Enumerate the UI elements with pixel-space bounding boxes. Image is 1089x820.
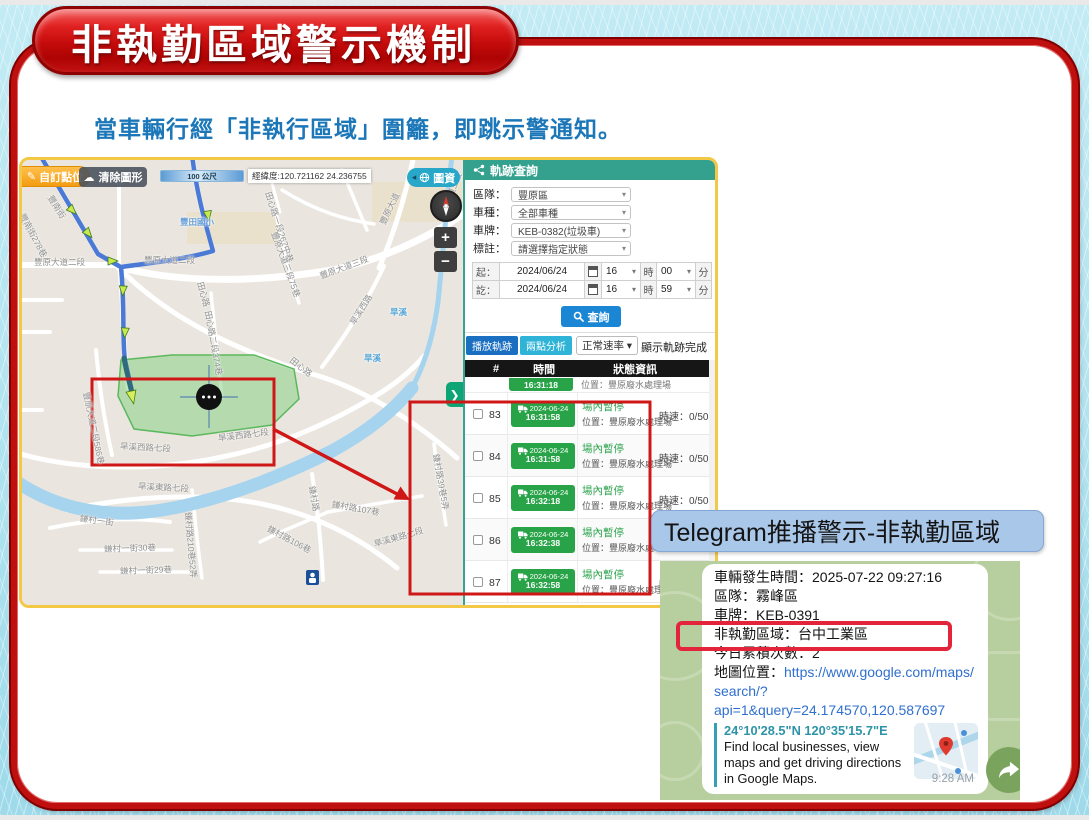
row-status: 場內暫停 xyxy=(582,567,624,582)
row-time-badge: 2024-06-2416:32:38 xyxy=(511,527,575,553)
zoom-in-button[interactable]: + xyxy=(434,227,457,248)
search-icon xyxy=(573,311,585,323)
slide: { "slide": { "title": "非執勤區域警示機制", "subt… xyxy=(0,0,1089,820)
row-number: 87 xyxy=(489,577,501,589)
cloud-icon: ☁ xyxy=(84,171,95,184)
row-speed: 時速：0/50 xyxy=(659,450,708,465)
speed-mode-select[interactable]: 正常速率 ▾ xyxy=(576,336,638,355)
panel-toggle-button[interactable]: ❯ xyxy=(446,382,463,407)
play-track-button[interactable]: 播放軌跡 xyxy=(466,336,518,355)
message-timestamp: 9:28 AM xyxy=(932,770,974,789)
row-number: 83 xyxy=(489,409,501,421)
row-status: 場內暫停 xyxy=(582,483,624,498)
street-label: 旱溪 xyxy=(390,306,407,318)
end-minute-select[interactable]: 59▾ xyxy=(656,280,696,299)
share-nodes-icon xyxy=(473,164,485,176)
track-table-row: 832024-06-2416:31:58場內暫停位置：豐原廢水處理場時速：0/5… xyxy=(465,393,711,435)
row-time-badge: 2024-06-2416:31:58 xyxy=(511,443,575,469)
row-number: 85 xyxy=(489,493,501,505)
msg-line-district: 區隊：霧峰區 xyxy=(714,587,978,606)
map-layers-button[interactable]: ◂ 圖資 xyxy=(407,168,460,187)
track-query-header: 軌跡查詢 xyxy=(465,160,715,180)
map-coordinates-readout: 經緯度:120.721162 24.236755 xyxy=(248,169,371,183)
row-status: 場內暫停 xyxy=(582,399,624,414)
forward-button[interactable] xyxy=(986,747,1020,793)
row-status: 場內暫停 xyxy=(582,441,624,456)
vehicle-type-select[interactable]: 全部車種 ▾ xyxy=(511,205,631,220)
pencil-icon: ✎ xyxy=(27,170,36,183)
row-checkbox[interactable] xyxy=(473,451,483,461)
poi-temple-icon xyxy=(306,570,319,585)
panel-title: 軌跡查詢 xyxy=(490,162,538,179)
row-checkbox[interactable] xyxy=(473,493,483,503)
slide-subtitle: 當車輛行經「非執行區域」圍籬，即跳示警通知。 xyxy=(94,110,622,144)
row-number: 86 xyxy=(489,535,501,547)
row-time-badge: 2024-06-2416:32:18 xyxy=(511,485,575,511)
street-label: 豐田國小 xyxy=(180,216,214,228)
forward-arrow-icon xyxy=(998,760,1020,780)
compass-control[interactable] xyxy=(430,190,462,222)
track-table-header: # 時間 狀態資訊 xyxy=(465,360,717,377)
alert-highlight-box xyxy=(676,621,952,651)
row-time-badge: 2024-06-2416:32:58 xyxy=(511,569,575,595)
chevron-down-icon: ▾ xyxy=(627,340,632,352)
plate-select[interactable]: KEB-0382(垃圾車) ▾ xyxy=(511,223,631,238)
start-date-input[interactable]: 2024/06/24 xyxy=(499,262,585,281)
row-number: 84 xyxy=(489,451,501,463)
start-time-row: 起： 2024/06/24 16▾ 時 00▾ 分 xyxy=(473,262,712,281)
track-table-row: 842024-06-2416:31:58場內暫停位置：豐原廢水處理場時速：0/5… xyxy=(465,435,711,477)
street-label: 鎌村一街29巷 xyxy=(120,563,172,577)
track-status-message: 顯示軌跡完成 xyxy=(641,339,707,355)
msg-line-maplink: 地圖位置：https://www.google.com/maps/ xyxy=(714,663,978,682)
chevron-down-icon: ▾ xyxy=(622,244,626,253)
end-hour-select[interactable]: 16▾ xyxy=(601,280,641,299)
telegram-message-bubble: 車輛發生時間：2025-07-22 09:27:16 區隊：霧峰區 車牌：KEB… xyxy=(702,564,988,794)
row-checkbox[interactable] xyxy=(473,409,483,419)
start-minute-select[interactable]: 00▾ xyxy=(656,262,696,281)
status-tag-select[interactable]: 請選擇指定狀態 ▾ xyxy=(511,241,631,256)
start-hour-select[interactable]: 16▾ xyxy=(601,262,641,281)
globe-icon xyxy=(419,172,430,183)
tracking-app-screenshot: 豐南街豐南街278巷豐原大道二段豐原大道二段豐田國小田心路田心路二段374巷田心… xyxy=(19,157,718,608)
field-row-district: 區隊： 豐原區 ▾ xyxy=(473,186,631,202)
end-date-input[interactable]: 2024/06/24 xyxy=(499,280,585,299)
calendar-icon[interactable] xyxy=(584,262,602,281)
maps-link[interactable]: search/? xyxy=(714,682,978,701)
row-status: 場內暫停 xyxy=(582,525,624,540)
chevron-down-icon: ▾ xyxy=(622,208,626,217)
district-select[interactable]: 豐原區 ▾ xyxy=(511,187,631,202)
search-button[interactable]: 查詢 xyxy=(561,306,621,327)
end-time-row: 訖： 2024/06/24 16▾ 時 59▾ 分 xyxy=(473,280,712,299)
chevron-down-icon: ▾ xyxy=(622,190,626,199)
row-checkbox[interactable] xyxy=(473,577,483,587)
chevron-down-icon: ▾ xyxy=(622,226,626,235)
maps-link[interactable]: https://www.google.com/maps/ xyxy=(784,664,974,680)
field-row-tag: 標註： 請選擇指定狀態 ▾ xyxy=(473,240,631,256)
calendar-icon[interactable] xyxy=(584,280,602,299)
preview-description: Find local businesses, view maps and get… xyxy=(724,739,909,787)
two-point-analysis-button[interactable]: 兩點分析 xyxy=(520,336,572,355)
field-row-plate: 車牌： KEB-0382(垃圾車) ▾ xyxy=(473,222,631,238)
preview-title: 24°10'28.5"N 120°35'15.7"E xyxy=(724,723,909,739)
map-scale-bar: 100 公尺 xyxy=(160,170,244,182)
slide-title-banner: 非執勤區域警示機制 xyxy=(32,6,519,75)
row-time-badge: 16:31:18 xyxy=(509,378,573,391)
map-canvas[interactable]: 豐南街豐南街278巷豐原大道二段豐原大道二段豐田國小田心路田心路二段374巷田心… xyxy=(22,160,463,605)
row-checkbox[interactable] xyxy=(473,535,483,545)
row-time-badge: 2024-06-2416:31:58 xyxy=(511,401,575,427)
field-row-vehicle-type: 車種： 全部車種 ▾ xyxy=(473,204,631,220)
row-location: 位置：豐原廢水處理場 xyxy=(581,378,671,391)
track-table-row-partial: 16:31:18 位置：豐原廢水處理場 xyxy=(465,377,711,393)
telegram-alert-caption: Telegram推播警示-非執勤區域 xyxy=(651,510,1044,552)
clear-shapes-button[interactable]: ☁ 清除圖形 xyxy=(79,167,147,187)
street-label: 豐原大道二段 xyxy=(34,256,85,268)
page-title: 非執勤區域警示機制 xyxy=(71,11,476,71)
maps-link[interactable]: api=1&query=24.174570,120.587697 xyxy=(714,701,978,720)
row-speed: 時速：0/50 xyxy=(659,408,708,423)
msg-line-time: 車輛發生時間：2025-07-22 09:27:16 xyxy=(714,568,978,587)
street-label: 鎌村一街30巷 xyxy=(104,541,156,555)
telegram-chat-panel: 車輛發生時間：2025-07-22 09:27:16 區隊：霧峰區 車牌：KEB… xyxy=(660,561,1020,800)
row-speed: 時速：0/50 xyxy=(659,492,708,507)
zoom-out-button[interactable]: − xyxy=(434,251,457,272)
street-label: 旱溪 xyxy=(364,352,381,364)
collapse-arrow-icon: ◂ xyxy=(412,172,417,183)
street-label: 豐原大道二段 xyxy=(144,254,195,266)
